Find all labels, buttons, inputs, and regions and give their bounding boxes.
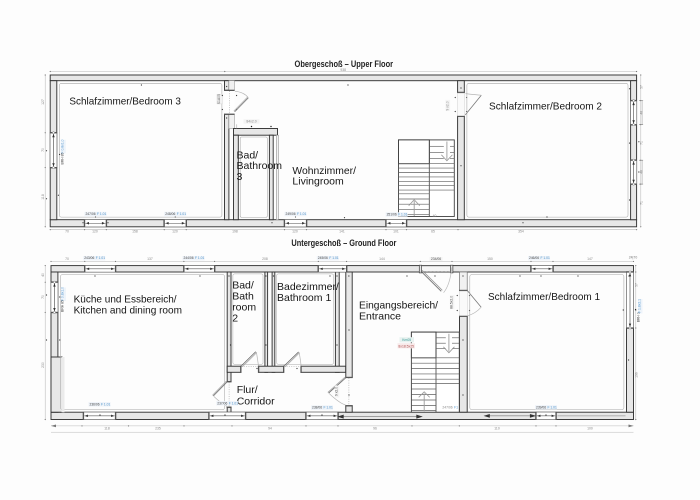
svg-text:248/06: 248/06 [165, 212, 175, 216]
svg-text:137: 137 [147, 257, 153, 261]
svg-text:BRH 0: BRH 0 [637, 312, 641, 322]
svg-text:96: 96 [373, 426, 377, 430]
svg-text:Flur/: Flur/ [237, 384, 258, 396]
svg-text:40: 40 [433, 214, 437, 218]
svg-text:144: 144 [379, 257, 385, 261]
svg-text:9 x2.0: 9 x2.0 [335, 387, 339, 396]
svg-text:246/06: 246/06 [529, 256, 539, 260]
svg-text:S1A05: S1A05 [217, 94, 221, 104]
svg-text:236/06: 236/06 [90, 402, 100, 406]
svg-text:F 1.01: F 1.01 [97, 212, 107, 216]
svg-text:BRH 85: BRH 85 [61, 300, 65, 312]
svg-text:88.5x2.0: 88.5x2.0 [450, 296, 454, 309]
svg-text:938: 938 [340, 68, 346, 72]
svg-text:150: 150 [487, 257, 493, 261]
svg-text:70: 70 [41, 148, 45, 152]
svg-text:40: 40 [41, 273, 45, 277]
svg-text:F 0.8x1.0: F 0.8x1.0 [60, 139, 64, 153]
svg-text:196: 196 [635, 372, 639, 378]
svg-text:71: 71 [640, 201, 644, 205]
svg-text:57: 57 [640, 85, 644, 89]
svg-text:247/06: 247/06 [85, 212, 95, 216]
svg-text:F1: F1 [454, 406, 458, 410]
svg-text:147: 147 [587, 257, 593, 261]
svg-text:94: 94 [268, 426, 272, 430]
svg-text:3: 3 [237, 171, 243, 183]
svg-text:F 1.01: F 1.01 [297, 212, 307, 216]
svg-text:118: 118 [104, 426, 110, 430]
svg-text:F 0.8x1.0: F 0.8x1.0 [61, 287, 65, 301]
svg-text:Bathroom 1: Bathroom 1 [277, 292, 331, 304]
svg-text:247/06: 247/06 [442, 406, 452, 410]
svg-text:198: 198 [232, 229, 238, 233]
svg-text:244/06: 244/06 [184, 256, 194, 260]
svg-text:110: 110 [494, 426, 500, 430]
svg-text:Untergeschoß – Ground Floor: Untergeschoß – Ground Floor [291, 238, 396, 248]
svg-text:234/06: 234/06 [431, 257, 441, 261]
svg-text:Corridor: Corridor [237, 396, 275, 408]
svg-text:F 1.01: F 1.01 [195, 256, 205, 260]
svg-text:Bathroom: Bathroom [237, 160, 283, 172]
svg-text:BRH 85: BRH 85 [60, 152, 64, 164]
svg-text:8x18.5x25: 8x18.5x25 [398, 344, 414, 348]
svg-text:230: 230 [41, 362, 45, 368]
svg-text:70: 70 [65, 229, 69, 233]
svg-text:Schlafzimmer/Bedroom 2: Schlafzimmer/Bedroom 2 [489, 101, 602, 113]
svg-text:71: 71 [640, 141, 644, 145]
svg-text:249/06: 249/06 [286, 212, 296, 216]
svg-text:F 1.01: F 1.01 [329, 256, 339, 260]
svg-text:Kitchen and dining room: Kitchen and dining room [74, 304, 183, 316]
svg-text:2: 2 [232, 313, 238, 325]
svg-text:251/06: 251/06 [387, 213, 397, 217]
svg-text:238/06: 238/06 [312, 406, 322, 410]
svg-text:118: 118 [41, 194, 45, 200]
svg-text:158: 158 [132, 229, 138, 233]
svg-text:24|70: 24|70 [629, 256, 638, 260]
svg-text:F 1.01: F 1.01 [229, 401, 239, 405]
svg-text:Schlafzimmer/Bedroom 1: Schlafzimmer/Bedroom 1 [488, 291, 600, 303]
svg-text:F 1.01: F 1.01 [177, 212, 187, 216]
svg-text:100: 100 [587, 426, 593, 430]
svg-text:84x2.0: 84x2.0 [246, 120, 256, 124]
svg-text:101: 101 [393, 229, 399, 233]
svg-text:F 1.01: F 1.01 [541, 256, 551, 260]
svg-text:127: 127 [41, 99, 45, 105]
svg-text:Livingroom: Livingroom [292, 176, 344, 188]
svg-text:354: 354 [518, 229, 524, 233]
svg-text:70: 70 [41, 295, 45, 299]
svg-text:141: 141 [339, 229, 345, 233]
svg-text:243/06: 243/06 [84, 256, 94, 260]
svg-text:237/06: 237/06 [217, 401, 227, 405]
svg-text:70: 70 [65, 257, 69, 261]
svg-text:48: 48 [640, 111, 644, 115]
svg-text:Schlafzimmer/Bedroom 3: Schlafzimmer/Bedroom 3 [69, 95, 181, 107]
svg-text:239/06: 239/06 [536, 405, 546, 409]
svg-text:57: 57 [635, 283, 639, 287]
svg-text:120: 120 [172, 229, 178, 233]
svg-text:F 1.01: F 1.01 [548, 405, 558, 409]
svg-text:F 1.01: F 1.01 [324, 406, 334, 410]
svg-text:245/06: 245/06 [318, 256, 328, 260]
svg-text:F 1.01: F 1.01 [398, 213, 408, 217]
svg-text:208: 208 [262, 257, 268, 261]
svg-text:F 1.01: F 1.01 [96, 256, 106, 260]
svg-text:Entrance: Entrance [359, 310, 401, 322]
svg-text:F 1.01: F 1.01 [101, 402, 111, 406]
svg-text:F 1.8x2.1: F 1.8x2.1 [637, 299, 641, 313]
svg-text:235: 235 [155, 426, 161, 430]
svg-text:65: 65 [431, 229, 435, 233]
svg-text:120: 120 [92, 229, 98, 233]
svg-text:48: 48 [640, 170, 644, 174]
svg-text:120: 120 [292, 229, 298, 233]
svg-text:9 x2.0: 9 x2.0 [445, 101, 449, 110]
svg-text:Km05: Km05 [402, 338, 411, 342]
